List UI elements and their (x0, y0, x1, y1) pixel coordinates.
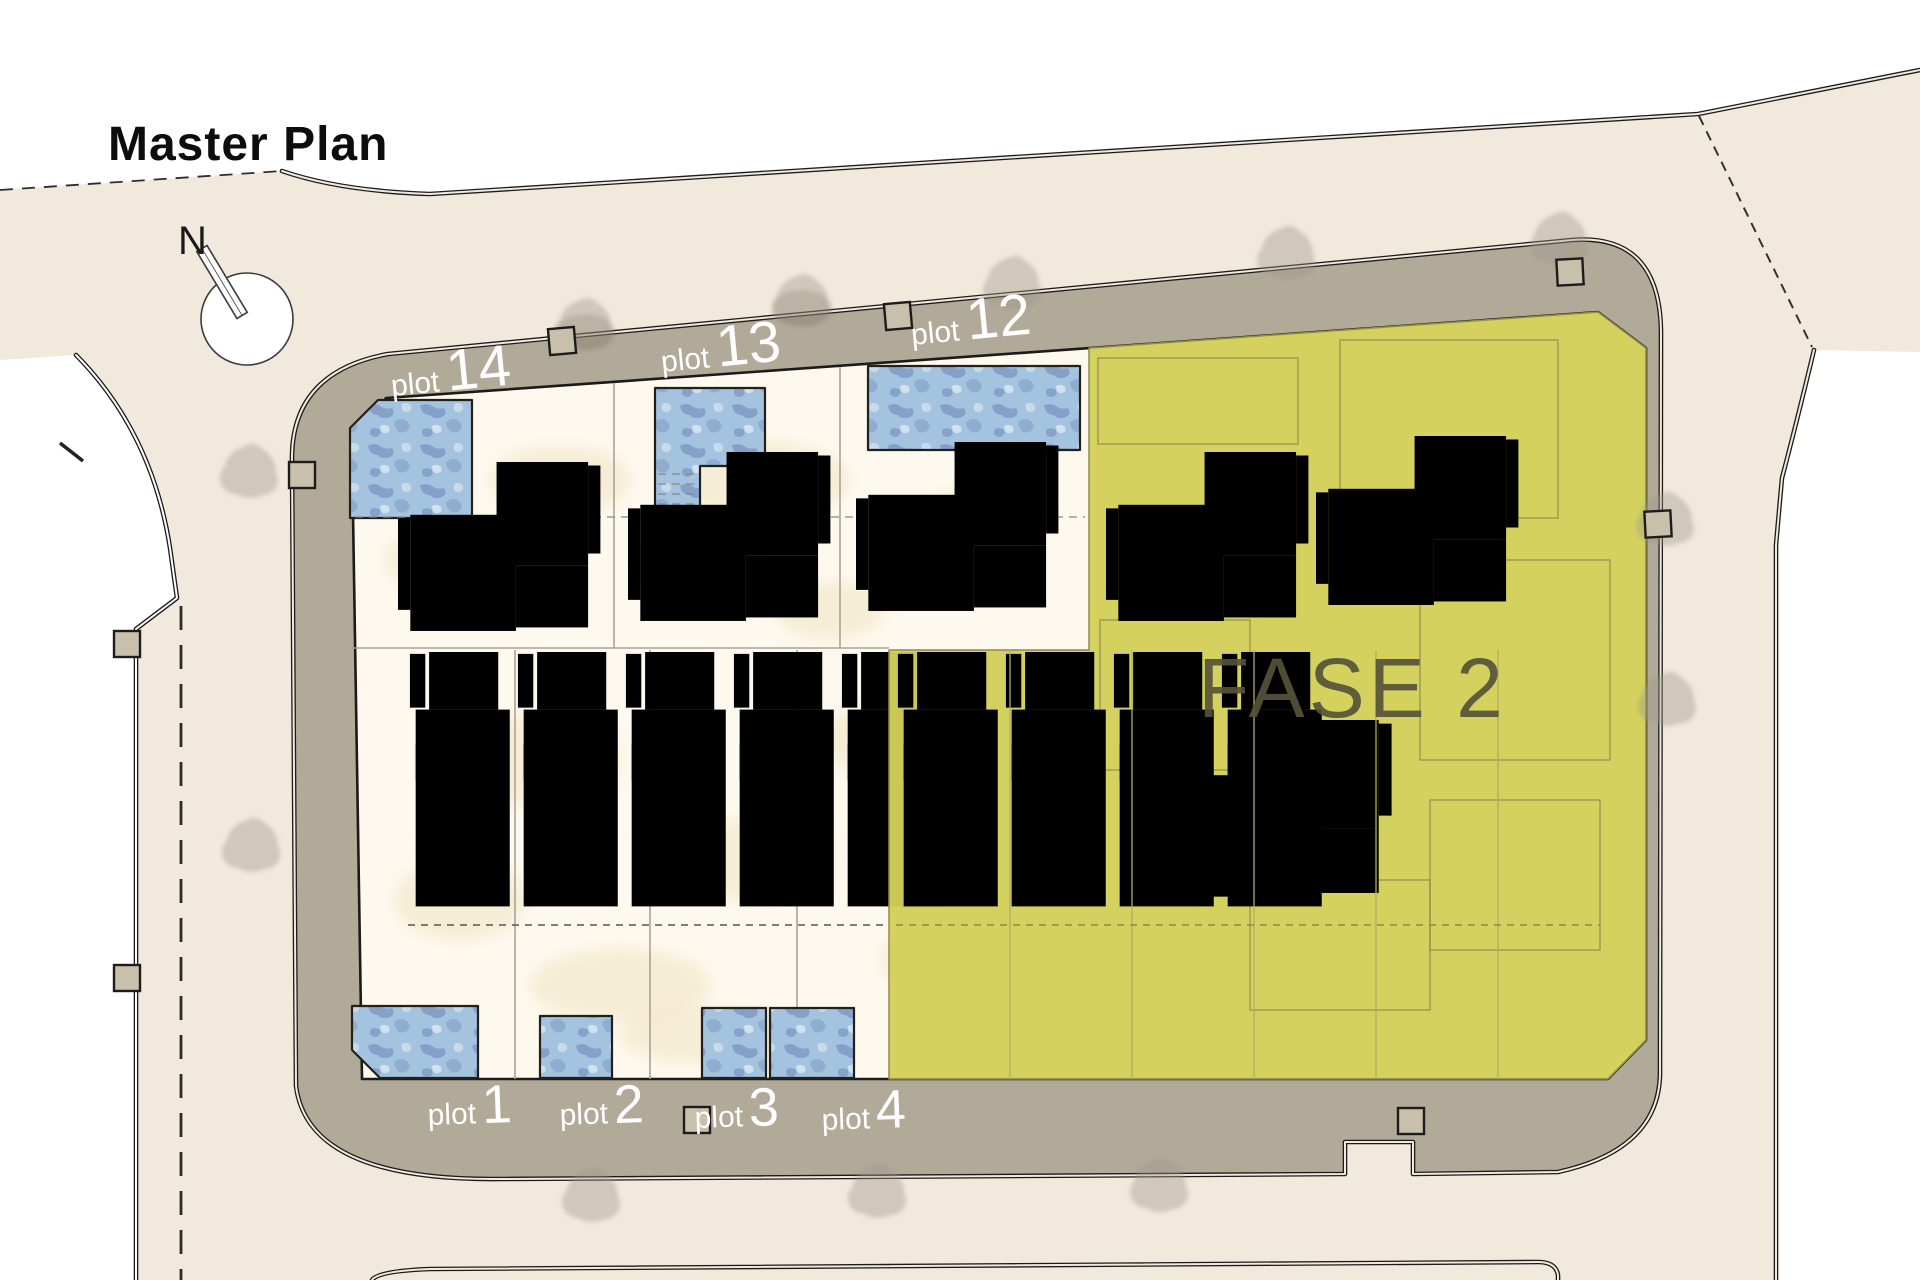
utility-marker-icon (1398, 1108, 1424, 1134)
utility-marker-icon (1556, 258, 1583, 285)
exterior-area-right (1776, 350, 1920, 1280)
pool-plot-4 (770, 1008, 854, 1078)
fase2-label-text: FASE 2 (1198, 641, 1507, 735)
pool-plot-3 (702, 1008, 766, 1078)
pool-plot-2 (540, 1016, 612, 1078)
fase2-label: FASE 2 (1198, 641, 1507, 735)
pool-plot-12 (868, 366, 1080, 450)
pool-plot-14 (350, 400, 472, 518)
pool-plot-1 (352, 1006, 478, 1078)
utility-marker-icon (884, 302, 912, 330)
houses-top-row (398, 442, 1058, 631)
utility-marker-icon (1644, 510, 1671, 537)
utility-marker-icon (114, 965, 140, 991)
utility-marker-icon (548, 327, 576, 355)
master-plan-canvas: N Master Plan FASE 2 plot14 plot13 plot1… (0, 0, 1920, 1280)
utility-marker-icon (114, 631, 140, 657)
houses-bottom-row (410, 652, 942, 906)
page-title: Master Plan (108, 118, 388, 171)
site-plan-drawing: N Master Plan FASE 2 plot14 plot13 plot1… (0, 0, 1920, 1280)
utility-marker-icon (289, 462, 315, 488)
north-label: N (178, 219, 207, 263)
